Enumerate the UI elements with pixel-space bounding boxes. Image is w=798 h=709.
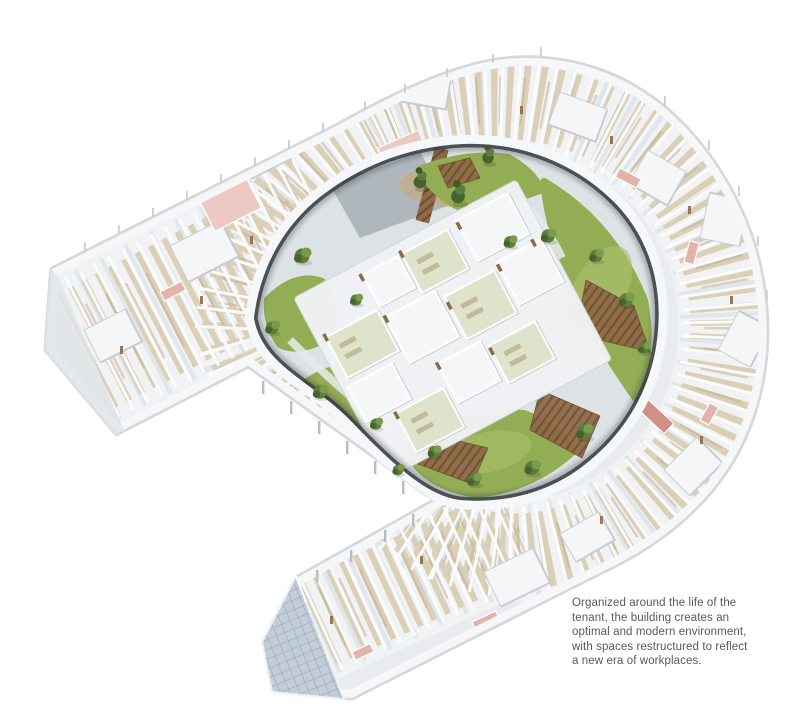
caption-line: optimal and modern environment,: [572, 625, 777, 640]
caption-line: with spaces restructured to reflect: [572, 640, 777, 655]
caption-line: Organized around the life of the: [572, 596, 777, 611]
caption-line: tenant, the building creates an: [572, 611, 777, 626]
page: Organized around the life of the tenant,…: [0, 0, 798, 709]
caption-line: a new era of workplaces.: [572, 654, 777, 669]
caption: Organized around the life of the tenant,…: [572, 596, 777, 669]
